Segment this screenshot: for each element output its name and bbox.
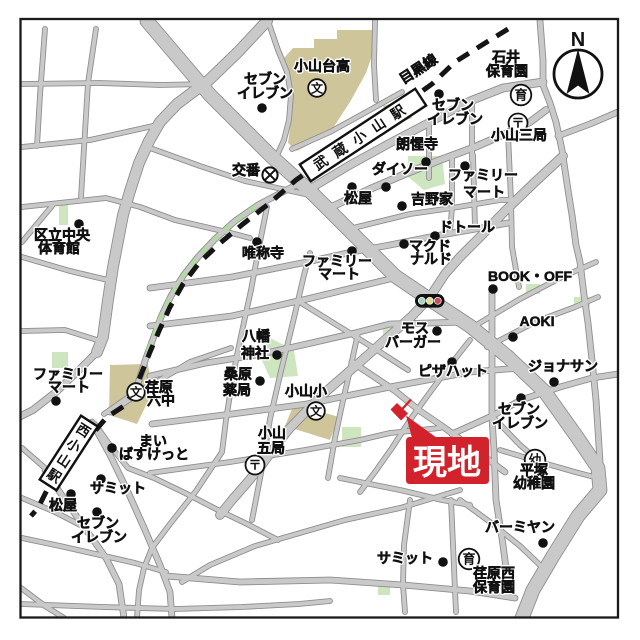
svg-text:バーミヤン: バーミヤン [485, 519, 555, 535]
svg-text:六中: 六中 [147, 392, 175, 408]
svg-text:小山小: 小山小 [285, 383, 327, 399]
svg-text:育: 育 [514, 88, 527, 103]
svg-text:マート: マート [463, 184, 505, 200]
svg-text:ばすけっと: ばすけっと [119, 446, 189, 462]
svg-text:小山台高: 小山台高 [294, 58, 350, 74]
svg-text:イレブン: イレブン [71, 529, 127, 545]
svg-text:唯称寺: 唯称寺 [242, 245, 284, 261]
svg-text:ジョナサン: ジョナサン [528, 358, 598, 374]
svg-text:朗惺寺: 朗惺寺 [396, 136, 438, 152]
svg-text:イレブン: イレブン [237, 85, 293, 101]
svg-text:神社: 神社 [241, 345, 269, 361]
svg-text:吉野家: 吉野家 [411, 191, 454, 207]
svg-text:バーガー: バーガー [385, 334, 441, 350]
svg-text:文: 文 [130, 384, 143, 399]
svg-text:五局: 五局 [257, 440, 285, 456]
svg-text:幼稚園: 幼稚園 [513, 475, 555, 491]
svg-text:サミット: サミット [90, 480, 146, 496]
svg-text:小山: 小山 [258, 425, 286, 441]
svg-text:八幡: 八幡 [241, 328, 271, 344]
svg-text:松屋: 松屋 [49, 497, 77, 513]
svg-text:ナルド: ナルド [410, 251, 452, 267]
svg-text:現地: 現地 [413, 444, 481, 482]
svg-text:桑原: 桑原 [224, 366, 252, 382]
svg-text:AOKI: AOKI [520, 313, 555, 329]
svg-text:交番: 交番 [232, 162, 261, 178]
svg-text:イレブン: イレブン [492, 415, 548, 431]
svg-text:ピザハット: ピザハット [418, 363, 488, 379]
svg-text:小山三局: 小山三局 [491, 127, 547, 143]
svg-text:ファミリー: ファミリー [448, 167, 518, 183]
svg-text:N: N [571, 29, 585, 51]
svg-text:〒: 〒 [248, 458, 261, 473]
svg-text:保育園: 保育園 [472, 579, 515, 595]
svg-text:マート: マート [318, 266, 360, 282]
svg-text:保育園: 保育園 [485, 63, 528, 79]
svg-text:松屋: 松屋 [344, 190, 372, 206]
svg-text:文: 文 [310, 403, 323, 418]
svg-text:サミット: サミット [377, 550, 433, 566]
svg-text:薬局: 薬局 [223, 382, 251, 398]
svg-text:体育館: 体育館 [38, 240, 80, 256]
svg-text:マート: マート [48, 379, 90, 395]
svg-text:文: 文 [311, 80, 324, 95]
svg-text:BOOK・OFF: BOOK・OFF [488, 268, 572, 284]
svg-text:ドトール: ドトール [439, 219, 495, 235]
svg-text:イレブン: イレブン [427, 111, 483, 127]
svg-text:ダイソー: ダイソー [372, 161, 428, 177]
